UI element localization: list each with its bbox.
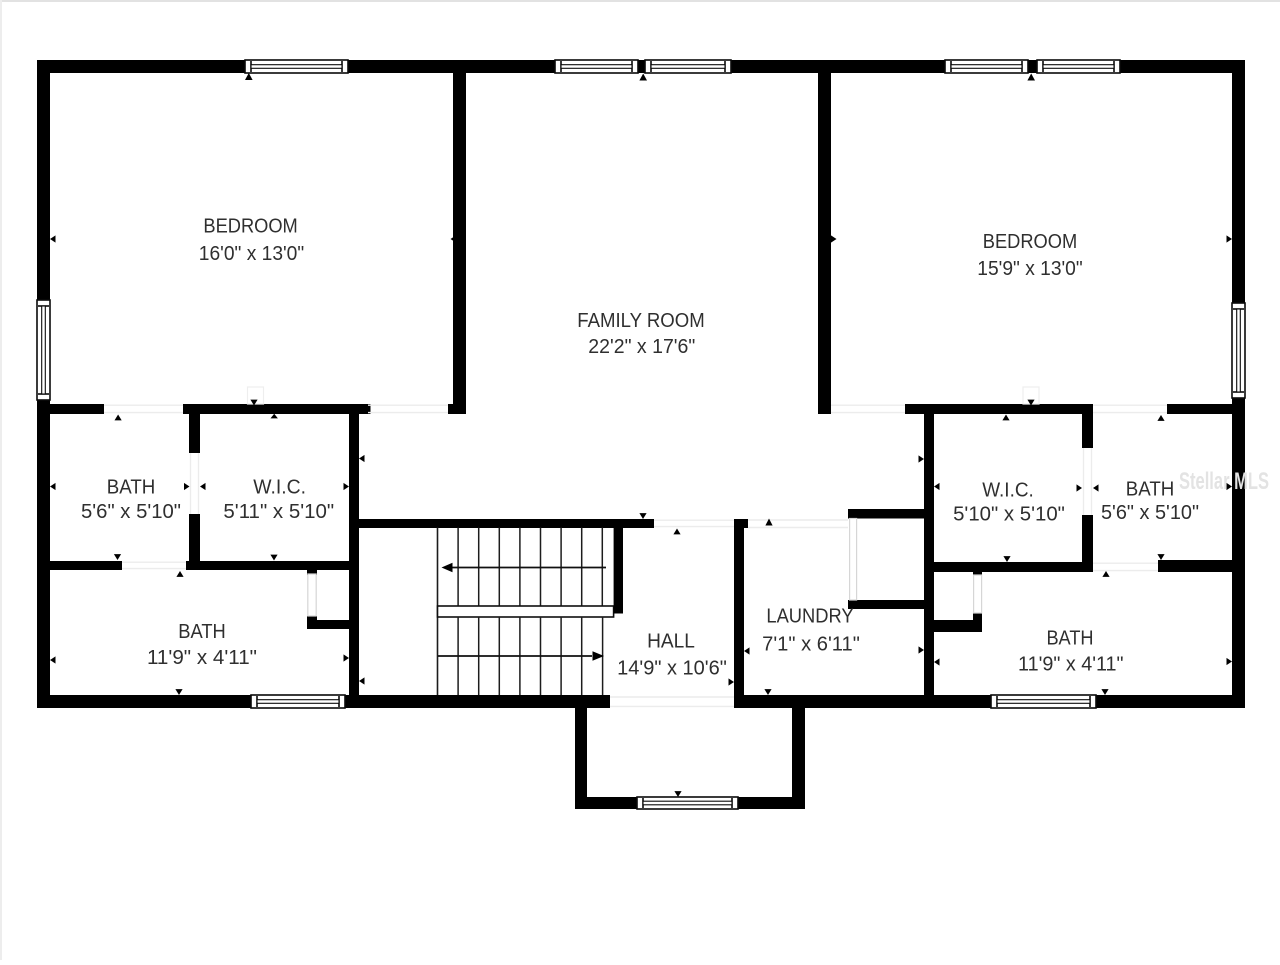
svg-text:W.I.C.: W.I.C. xyxy=(253,476,306,499)
svg-text:11'9" x 4'11": 11'9" x 4'11" xyxy=(1018,653,1124,676)
svg-text:5'11" x 5'10": 5'11" x 5'10" xyxy=(223,500,334,523)
svg-text:BEDROOM: BEDROOM xyxy=(983,230,1077,253)
svg-text:BEDROOM: BEDROOM xyxy=(203,215,297,238)
svg-text:5'10" x 5'10": 5'10" x 5'10" xyxy=(953,503,1065,526)
svg-text:16'0" x 13'0": 16'0" x 13'0" xyxy=(199,242,304,265)
svg-text:HALL: HALL xyxy=(647,630,695,653)
svg-text:BATH: BATH xyxy=(1046,627,1093,650)
svg-text:22'2" x 17'6": 22'2" x 17'6" xyxy=(588,335,695,358)
svg-text:BATH: BATH xyxy=(1126,478,1175,501)
svg-text:15'9" x 13'0": 15'9" x 13'0" xyxy=(977,257,1082,280)
svg-text:14'9" x 10'6": 14'9" x 10'6" xyxy=(617,657,727,680)
svg-text:BATH: BATH xyxy=(107,476,156,499)
svg-text:5'6" x 5'10": 5'6" x 5'10" xyxy=(1101,501,1199,524)
svg-text:FAMILY ROOM: FAMILY ROOM xyxy=(577,309,704,332)
svg-text:11'9" x 4'11": 11'9" x 4'11" xyxy=(147,646,257,669)
svg-text:7'1" x 6'11": 7'1" x 6'11" xyxy=(762,633,860,656)
svg-text:5'6" x 5'10": 5'6" x 5'10" xyxy=(81,500,181,523)
svg-text:W.I.C.: W.I.C. xyxy=(982,479,1034,502)
svg-text:Stellar MLS: Stellar MLS xyxy=(1179,468,1269,495)
svg-text:BATH: BATH xyxy=(178,620,226,643)
svg-text:LAUNDRY: LAUNDRY xyxy=(766,605,853,628)
